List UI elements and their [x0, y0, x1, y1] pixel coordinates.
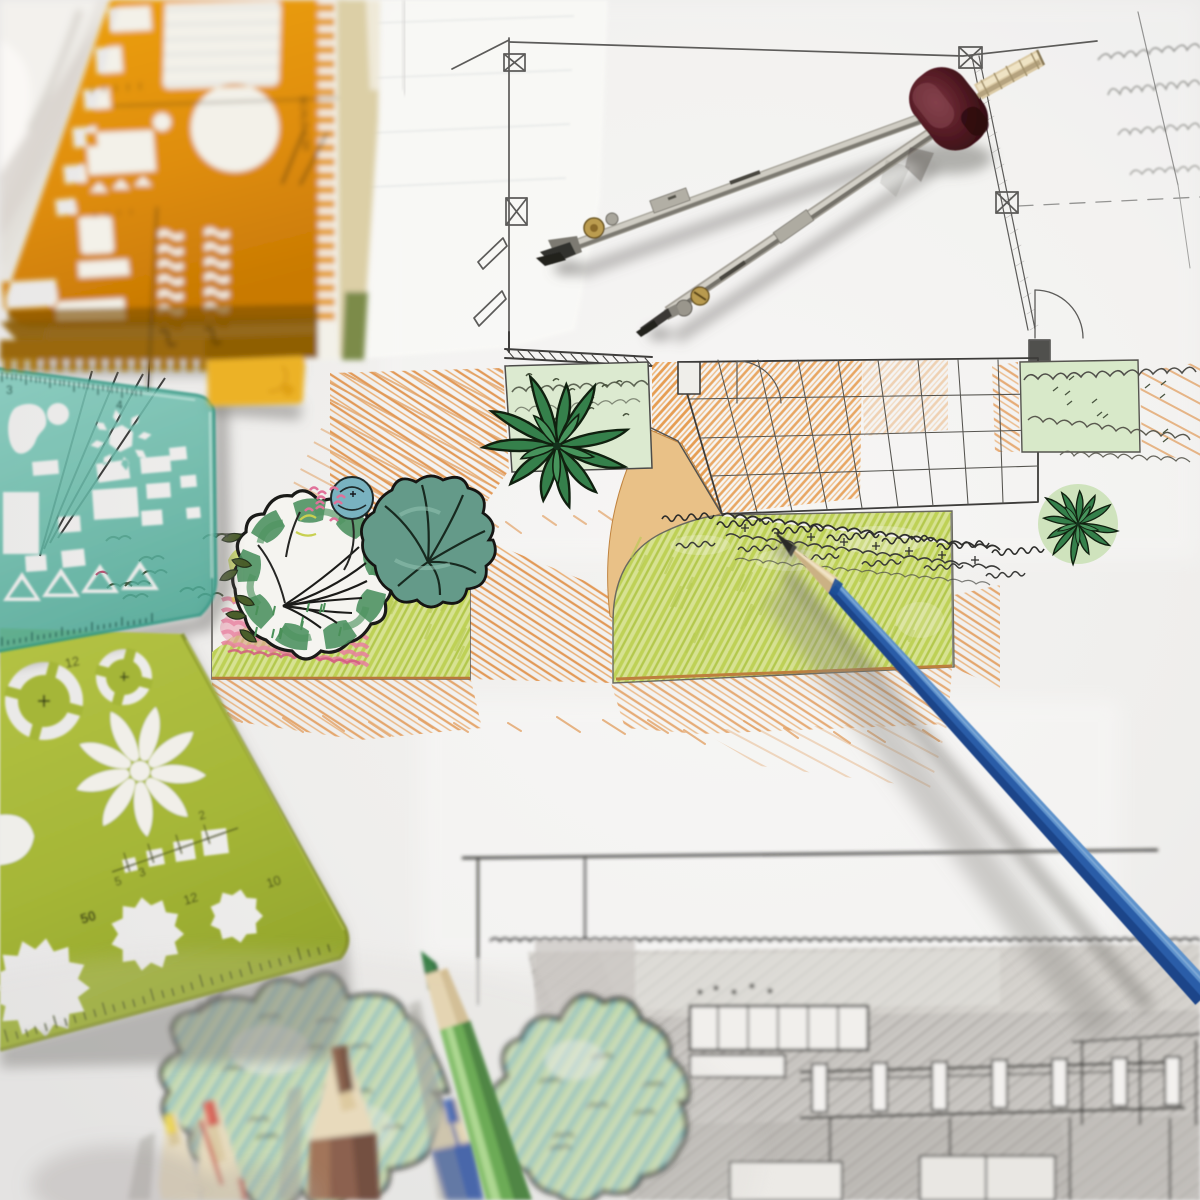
svg-text:4: 4	[116, 398, 123, 412]
svg-text:12: 12	[64, 653, 81, 671]
svg-text:3: 3	[6, 383, 13, 397]
